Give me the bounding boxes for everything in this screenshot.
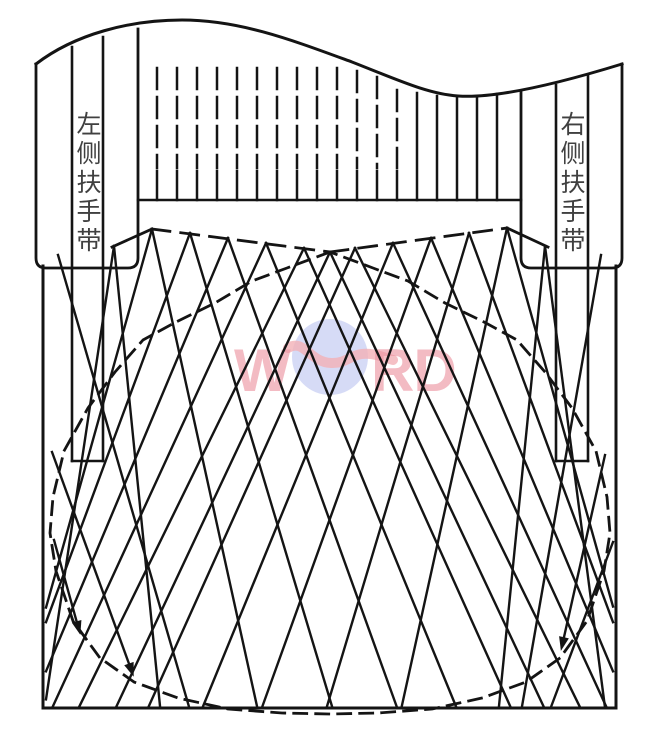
hatch-line [203,243,393,707]
hatch-line [355,248,580,707]
label-left-handrail: 左侧扶手带 [74,111,99,256]
label-right-handrail: 右侧扶手带 [558,111,583,256]
hatch-line [507,228,613,607]
hatch-line [114,246,160,707]
hatch-line [304,248,511,707]
top-wave-boundary [36,20,622,96]
zone-top-dashed-rays [152,228,507,252]
hatch-line [148,248,355,707]
hatch-zone [46,228,613,707]
step-lines [157,68,497,200]
escalator-handrail-zone-diagram: W RD [0,0,669,735]
hatch-line [79,248,304,707]
dashed-zone-outline [50,252,610,714]
hatch-line [46,229,152,608]
hatch-line [116,252,330,707]
hatch-line [266,243,456,707]
hatch-line [402,228,507,707]
floor-plate-outline [43,266,616,708]
step-band [138,68,521,200]
hatch-line [499,246,545,707]
